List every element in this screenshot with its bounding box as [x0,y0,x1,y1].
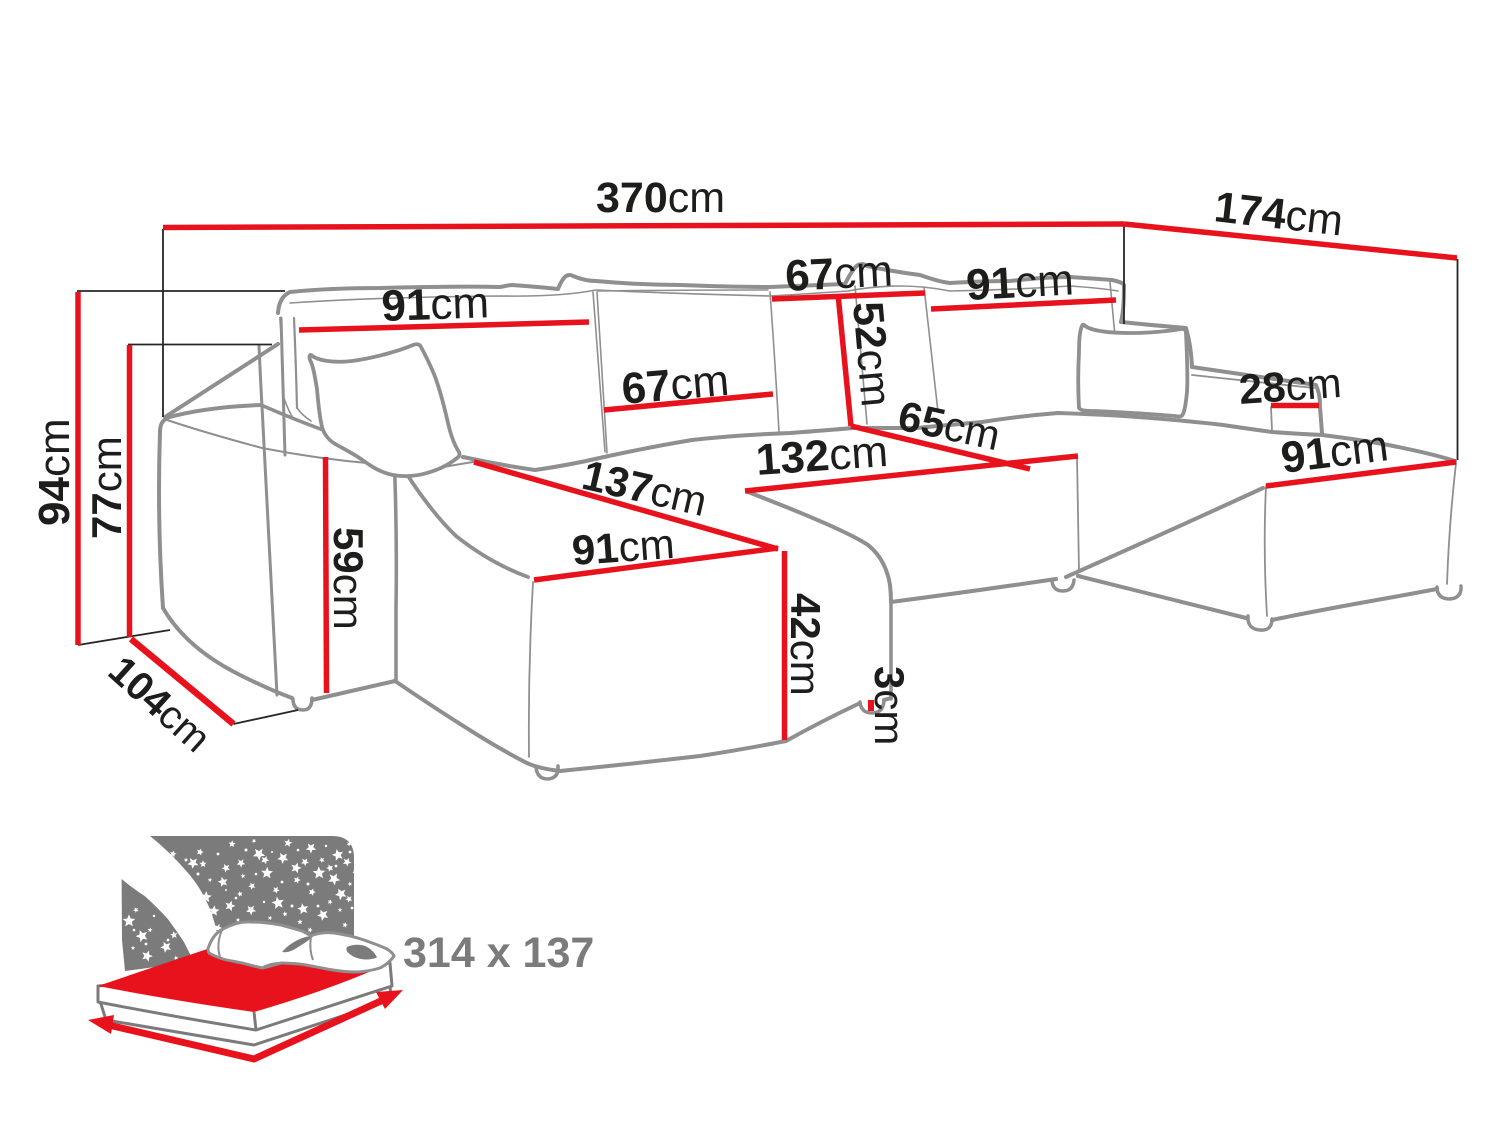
svg-text:42cm: 42cm [782,593,829,696]
svg-text:59cm: 59cm [325,527,372,630]
svg-text:91cm: 91cm [381,278,490,331]
svg-text:370cm: 370cm [596,174,725,222]
svg-text:28cm: 28cm [1237,359,1343,413]
svg-text:91cm: 91cm [570,520,676,574]
svg-text:77cm: 77cm [83,436,130,539]
svg-text:67cm: 67cm [784,246,894,301]
svg-text:94cm: 94cm [30,418,79,526]
svg-text:91cm: 91cm [965,255,1075,310]
svg-text:3cm: 3cm [866,666,913,745]
svg-text:67cm: 67cm [620,356,731,414]
svg-text:314 x 137: 314 x 137 [403,929,594,977]
svg-text:52cm: 52cm [843,300,900,409]
svg-text:132cm: 132cm [754,427,889,485]
